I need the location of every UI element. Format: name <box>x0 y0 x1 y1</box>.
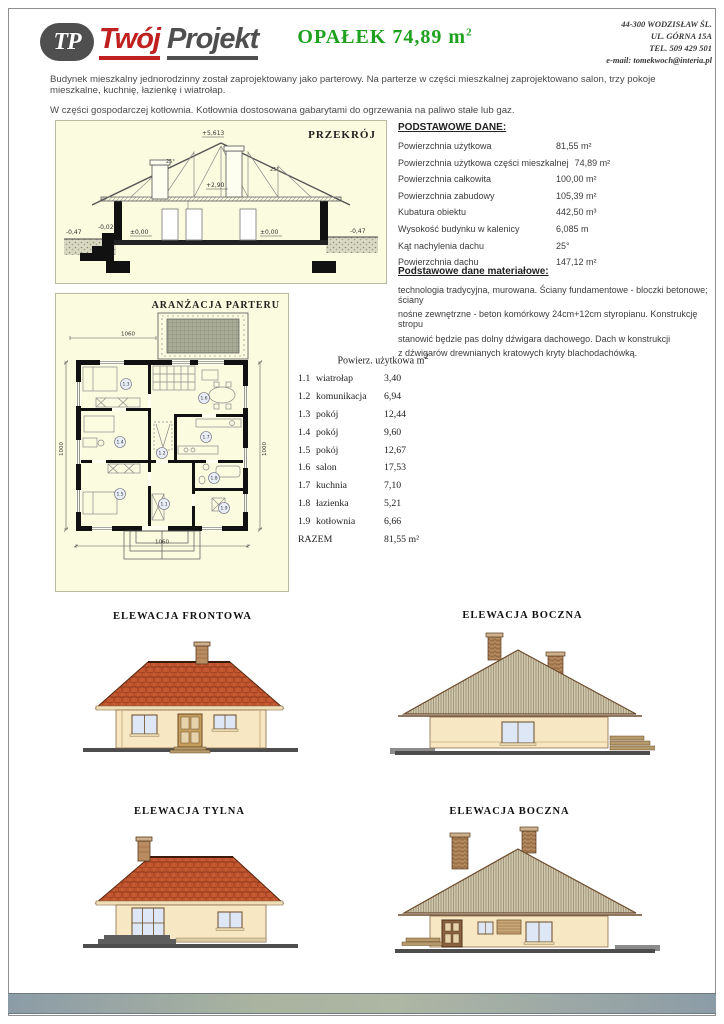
elevation-front-title: ELEWACJA FRONTOWA <box>105 611 260 622</box>
roof <box>96 857 283 903</box>
room-no: 1.8 <box>298 498 316 509</box>
room-area: 12,67 <box>384 445 444 456</box>
room-area: 5,21 <box>384 498 444 509</box>
svg-text:1.8: 1.8 <box>211 476 218 482</box>
svg-text:1.1: 1.1 <box>161 502 168 508</box>
room-name: salon <box>316 462 384 473</box>
cross-section-panel: PRZEKRÓJ <box>55 120 387 284</box>
wall-section-left <box>114 201 122 240</box>
elevation-rear-title: ELEWACJA TYLNA <box>112 806 267 817</box>
svg-text:1060: 1060 <box>121 332 135 338</box>
footer-bar <box>8 993 716 1014</box>
bd-value: 442,50 m³ <box>556 207 597 217</box>
svg-text:1.7: 1.7 <box>203 435 210 441</box>
ground-line <box>83 944 298 948</box>
room-area: 9,60 <box>384 427 444 438</box>
elevation-side1-title: ELEWACJA BOCZNA <box>445 610 600 621</box>
room-name: łazienka <box>316 498 384 509</box>
basic-data-row: Powierzchnia użytkowa części mieszkalnej… <box>398 158 718 168</box>
room-no: 1.3 <box>298 409 316 420</box>
side-door <box>442 920 462 947</box>
vent-shutter <box>497 920 521 934</box>
contact-address-line1: 44-300 WODZISŁAW ŚL. <box>470 18 712 30</box>
project-sheet: TP Twój Projekt OPAŁEK 74,89 m2 44-300 W… <box>0 0 724 1024</box>
floor-plan-panel: ARANŻACJA PARTERU <box>55 293 289 592</box>
contact-phone: TEL. 509 429 501 <box>470 42 712 54</box>
bd-value: 100,00 m² <box>556 174 597 184</box>
room-area: 3,40 <box>384 373 444 384</box>
eave-fascia <box>96 901 283 905</box>
svg-text:-0,47: -0,47 <box>350 228 366 235</box>
basic-data-row: Powierzchnia użytkowa 81,55 m² <box>398 141 718 151</box>
contact-block: 44-300 WODZISŁAW ŚL. UL. GÓRNA 15A TEL. … <box>470 18 712 66</box>
room-name: wiatrołap <box>316 373 384 384</box>
window <box>500 722 536 746</box>
window <box>524 922 554 945</box>
floor-slab <box>114 240 328 245</box>
window <box>130 715 159 737</box>
svg-text:1.4: 1.4 <box>117 440 124 446</box>
basic-data-row: Powierzchnia zabudowy 105,39 m² <box>398 191 718 201</box>
room-no: 1.2 <box>298 391 316 402</box>
materials-section: Podstawowe dane materiałowe: technologia… <box>398 266 718 363</box>
svg-text:1.3: 1.3 <box>123 382 130 388</box>
elevation-side2-title: ELEWACJA BOCZNA <box>432 806 587 817</box>
svg-text:1000: 1000 <box>59 442 65 456</box>
room-name: pokój <box>316 409 384 420</box>
basic-data-section: PODSTAWOWE DANE: Powierzchnia użytkowa 8… <box>398 122 718 274</box>
gable-roof <box>404 650 636 714</box>
bd-label: Powierzchnia zabudowy <box>398 191 556 201</box>
elevation-rear-drawing <box>78 827 303 955</box>
furniture <box>83 366 241 520</box>
ground-line <box>395 949 655 953</box>
bd-label: Powierzchnia użytkowa części mieszkalnej <box>398 158 575 168</box>
intro-line-1: Budynek mieszkalny jednorodzinny został … <box>50 74 705 96</box>
room-name: pokój <box>316 427 384 438</box>
basic-data-row: Wysokość budynku w kalenicy 6,085 m <box>398 224 718 234</box>
bd-value: 105,39 m² <box>556 191 597 201</box>
materials-line: nośne zewnętrzne - beton komórkowy 24cm+… <box>398 309 718 329</box>
room-row: 1.6 salon 17,53 <box>298 462 468 473</box>
bd-value: 81,55 m² <box>556 141 592 151</box>
contact-email: e-mail: tomekwoch@interia.pl <box>470 54 712 66</box>
small-window <box>478 922 493 934</box>
svg-text:25°: 25° <box>270 167 279 173</box>
room-total-value: 81,55 m² <box>384 534 444 545</box>
svg-text:±0,00: ±0,00 <box>130 229 149 236</box>
window <box>216 912 244 931</box>
front-door <box>178 714 202 747</box>
room-no: 1.4 <box>298 427 316 438</box>
floor-plan-title: ARANŻACJA PARTERU <box>152 300 280 311</box>
bd-label: Powierzchnia całkowita <box>398 174 556 184</box>
bd-label: Kąt nachylenia dachu <box>398 241 556 251</box>
window <box>212 715 238 732</box>
svg-text:1.6: 1.6 <box>201 396 208 402</box>
eave-fascia <box>96 706 283 710</box>
room-row: 1.2 komunikacja 6,94 <box>298 391 468 402</box>
room-area: 6,94 <box>384 391 444 402</box>
room-no: 1.9 <box>298 516 316 527</box>
svg-text:1.5: 1.5 <box>117 492 124 498</box>
terrace-platform <box>98 935 176 944</box>
svg-text:1000: 1000 <box>262 442 268 456</box>
room-area: 6,66 <box>384 516 444 527</box>
svg-text:+2,90: +2,90 <box>206 182 225 189</box>
room-name: komunikacja <box>316 391 384 402</box>
room-row: 1.8 łazienka 5,21 <box>298 498 468 509</box>
room-row: 1.7 kuchnia 7,10 <box>298 480 468 491</box>
logo-word-twoj: Twój <box>99 25 160 60</box>
bd-value: 6,085 m <box>556 224 589 234</box>
basic-data-row: Kąt nachylenia dachu 25° <box>398 241 718 251</box>
ground-line <box>395 751 650 755</box>
svg-text:-0,47: -0,47 <box>66 229 82 236</box>
room-row: 1.9 kotłownia 6,66 <box>298 516 468 527</box>
room-area: 7,10 <box>384 480 444 491</box>
section-doors <box>162 209 256 240</box>
dimension-lines <box>64 336 262 548</box>
bd-label: Powierzchnia użytkowa <box>398 141 556 151</box>
room-name: kotłownia <box>316 516 384 527</box>
materials-line: technologia tradycyjna, murowana. Ściany… <box>398 285 718 305</box>
room-area: 12,44 <box>384 409 444 420</box>
room-total-label: RAZEM <box>298 534 384 545</box>
ceiling-slab <box>101 197 341 201</box>
svg-text:-0,02: -0,02 <box>98 224 114 231</box>
roof <box>96 662 283 708</box>
logo-tp-icon: TP <box>40 23 94 61</box>
plinth-strip <box>176 938 266 942</box>
room-row: 1.3 pokój 12,44 <box>298 409 468 420</box>
svg-text:1060: 1060 <box>155 540 169 546</box>
basic-data-heading: PODSTAWOWE DANE: <box>398 122 718 133</box>
materials-line: stanowić będzie pas dolny dźwigara dacho… <box>398 334 718 344</box>
room-areas-table: Powierz. użytkowa m2 1.1 wiatrołap 3,40 … <box>298 352 468 545</box>
bd-value: 74,89 m² <box>575 158 611 168</box>
contact-address-line2: UL. GÓRNA 15A <box>470 30 712 42</box>
room-row: 1.5 pokój 12,67 <box>298 445 468 456</box>
elevation-side2-drawing <box>390 825 660 963</box>
basic-data-row: Kubatura obiektu 442,50 m³ <box>398 207 718 217</box>
room-name: pokój <box>316 445 384 456</box>
wall-section-right <box>320 201 328 240</box>
company-logo: TP Twój Projekt <box>40 20 258 64</box>
materials-heading: Podstawowe dane materiałowe: <box>398 266 718 277</box>
cross-section-drawing: +5,613 +2,90 25° 25° ±0,00 ±0,00 -0,02 -… <box>56 121 386 283</box>
room-no: 1.5 <box>298 445 316 456</box>
logo-word-projekt: Projekt <box>167 25 258 60</box>
chimney <box>136 837 152 861</box>
room-row: 1.4 pokój 9,60 <box>298 427 468 438</box>
room-no: 1.7 <box>298 480 316 491</box>
room-no: 1.1 <box>298 373 316 384</box>
intro-line-2: W części gospodarczej kotłownia. Kotłown… <box>50 105 705 116</box>
svg-text:±0,00: ±0,00 <box>260 229 279 236</box>
floor-plan-drawing: 1.3 1.6 1.4 1.7 1.2 1.8 1.5 1.1 1.9 <box>56 294 288 591</box>
svg-text:1.9: 1.9 <box>221 506 228 512</box>
entry-steps <box>170 747 210 753</box>
svg-text:25°: 25° <box>166 159 175 165</box>
elevation-front-drawing <box>78 632 303 757</box>
bd-value: 25° <box>556 241 570 251</box>
ground-hatch-right <box>326 237 378 253</box>
gable-roof <box>404 849 636 913</box>
room-row: 1.1 wiatrołap 3,40 <box>298 373 468 384</box>
room-name: kuchnia <box>316 480 384 491</box>
footing-right <box>312 261 336 273</box>
elevation-side1-drawing <box>390 630 655 760</box>
room-total-row: RAZEM 81,55 m² <box>298 534 468 545</box>
svg-text:1.2: 1.2 <box>159 451 166 457</box>
intro-paragraph: Budynek mieszkalny jednorodzinny został … <box>50 74 705 125</box>
room-no: 1.6 <box>298 462 316 473</box>
side-steps <box>610 736 655 750</box>
roof-truss-webs <box>106 146 336 197</box>
basic-data-row: Powierzchnia całkowita 100,00 m² <box>398 174 718 184</box>
footing-left <box>106 261 130 273</box>
terrace <box>158 313 248 359</box>
cross-section-title: PRZEKRÓJ <box>308 129 376 141</box>
door-steps <box>402 938 442 946</box>
bd-label: Kubatura obiektu <box>398 207 556 217</box>
room-areas-heading: Powierz. użytkowa m2 <box>298 352 468 366</box>
chimney <box>194 642 210 664</box>
bd-label: Wysokość budynku w kalenicy <box>398 224 556 234</box>
room-area: 17,53 <box>384 462 444 473</box>
svg-text:+5,613: +5,613 <box>202 130 224 137</box>
